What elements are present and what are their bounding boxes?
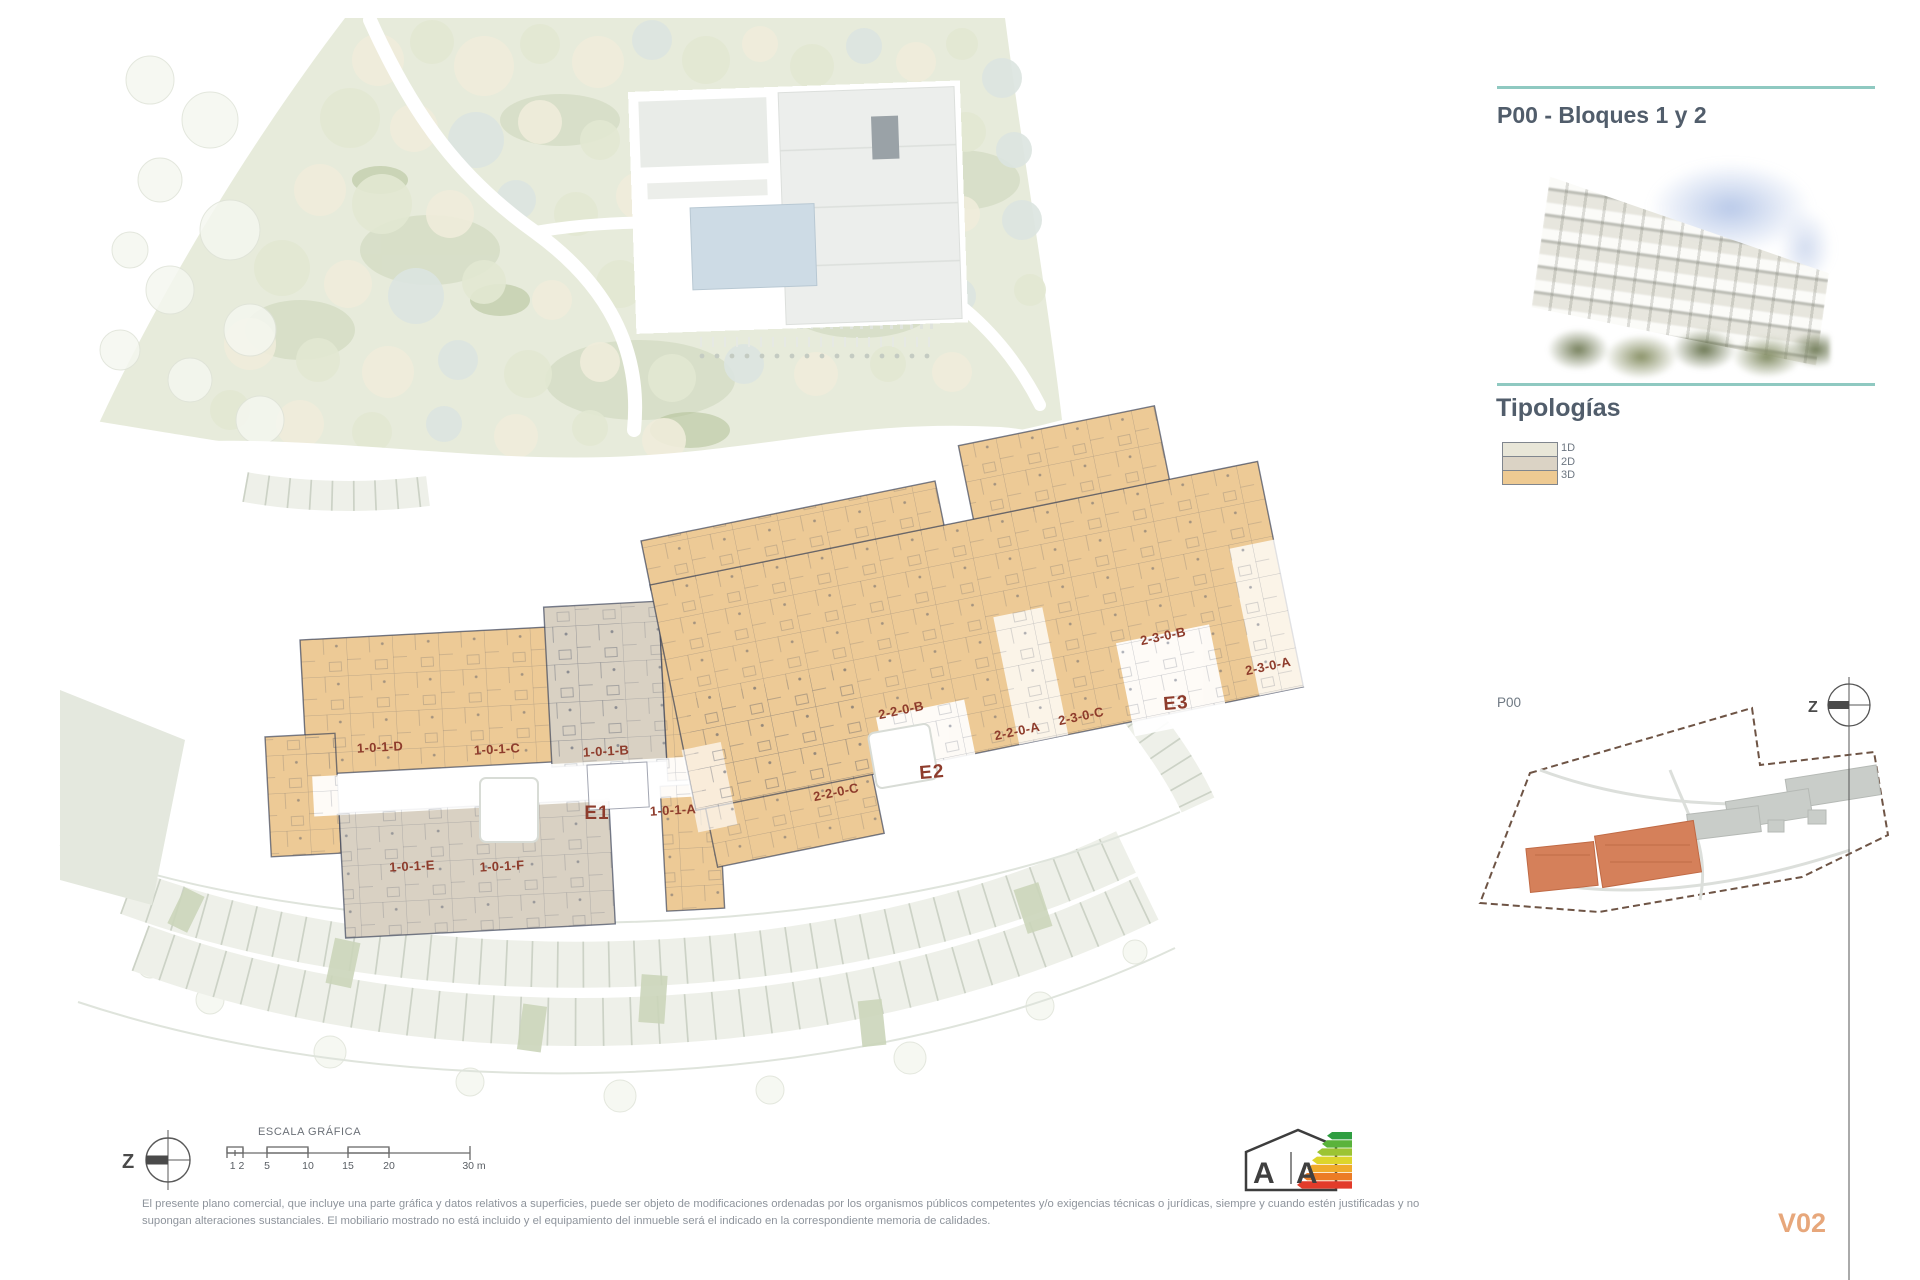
plan-sheet: Z P00 Z — [0, 0, 1920, 1280]
legal-disclaimer: El presente plano comercial, que incluye… — [142, 1196, 1434, 1230]
scale-bar — [227, 1146, 470, 1160]
legend-label-3d: 3D — [1561, 469, 1575, 483]
legend-label-2d: 2D — [1561, 456, 1575, 470]
scalebar-tick: 1 2 — [230, 1160, 245, 1172]
unit-label: 1-0-1-B — [583, 742, 630, 759]
block1-footprint — [259, 599, 725, 942]
scalebar-title: ESCALA GRÁFICA — [258, 1126, 361, 1138]
pool-complex — [628, 80, 968, 333]
scalebar-tick: 5 — [264, 1160, 270, 1172]
typologies-legend: 1D 2D 3D — [1502, 442, 1575, 485]
keyplan — [1480, 677, 1888, 1280]
scalebar-tick: 20 — [383, 1160, 395, 1172]
page-title: P00 - Bloques 1 y 2 — [1497, 102, 1707, 129]
typologies-heading: Tipologías — [1496, 394, 1621, 423]
core-label: E2 — [918, 761, 945, 785]
legend-swatches — [1502, 442, 1558, 485]
legend-swatch-2d — [1503, 457, 1557, 471]
unit-label: 1-0-1-D — [357, 738, 404, 755]
legend-labels: 1D 2D 3D — [1561, 442, 1575, 483]
scalebar-tick: 10 — [302, 1160, 314, 1172]
divider-line-middle — [1497, 383, 1875, 386]
keyplan-north-letter: Z — [1808, 699, 1818, 716]
legend-swatch-1d — [1503, 443, 1557, 457]
unit-label: 1-0-1-E — [389, 857, 435, 874]
version-label: V02 — [1778, 1208, 1826, 1239]
north-letter: Z — [122, 1151, 134, 1173]
scalebar-tick: 15 — [342, 1160, 354, 1172]
unit-label: 1-0-1-A — [650, 801, 697, 818]
keyplan-label: P00 — [1497, 695, 1521, 710]
swimming-pool — [690, 204, 817, 290]
energy-letter-right: A — [1296, 1157, 1318, 1190]
north-arrow — [146, 1130, 190, 1190]
energy-letter-left: A — [1253, 1157, 1275, 1190]
divider-line-top — [1497, 86, 1875, 89]
energy-rating-logo: A A — [1246, 1130, 1352, 1190]
core-label: E1 — [584, 803, 609, 825]
corner-green — [60, 690, 185, 905]
legend-label-1d: 1D — [1561, 442, 1575, 456]
core-label: E3 — [1162, 692, 1189, 716]
legend-swatch-3d — [1503, 471, 1557, 484]
vegetation-watercolor — [1544, 310, 1830, 382]
scalebar-tick: 30 m — [462, 1160, 485, 1172]
unit-label: 1-0-1-F — [479, 857, 524, 874]
building-illustration — [1538, 150, 1838, 382]
roof-core — [871, 116, 899, 160]
unit-label: 1-0-1-C — [474, 740, 521, 757]
